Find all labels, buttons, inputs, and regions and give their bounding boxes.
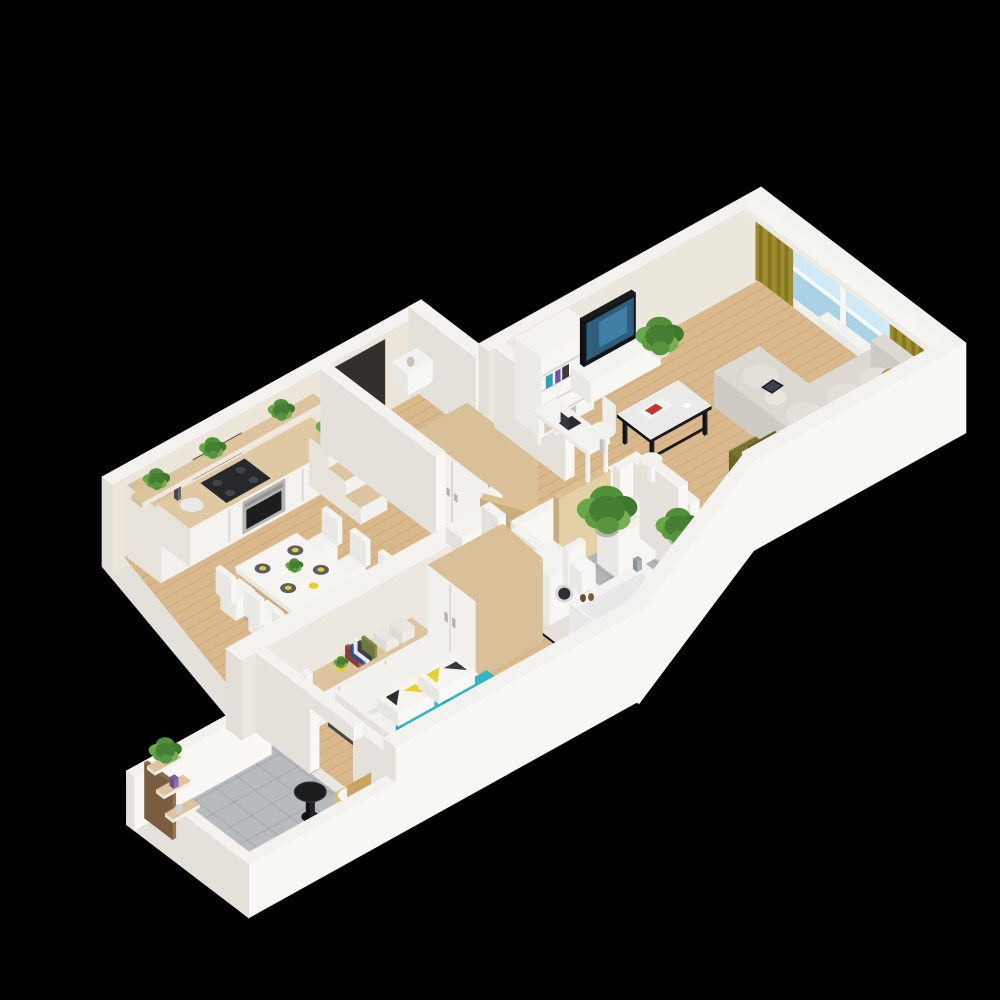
burner [212, 480, 222, 486]
wardrobe-seam [452, 461, 453, 533]
books-purple [556, 369, 561, 383]
table-bowl [309, 583, 319, 589]
desk-leg-side [586, 453, 588, 483]
dining-chair-back-side [259, 598, 264, 626]
napkin [292, 548, 299, 552]
desk-leg-side [606, 443, 608, 473]
wardrobe-handle [447, 488, 450, 497]
wall-north-kitchen-side [102, 477, 112, 575]
wardrobe-handle [445, 612, 448, 622]
desk-leg-side [536, 415, 538, 445]
burner [249, 477, 259, 483]
tv-side [580, 318, 584, 366]
pillow [764, 389, 786, 405]
counter-seam [229, 509, 230, 542]
wardrobe-seam [450, 585, 451, 658]
side-table [640, 452, 662, 466]
burner [236, 467, 246, 473]
kitchen-sink [180, 498, 204, 512]
dining-chair-back-side [337, 518, 342, 546]
jar [175, 804, 183, 814]
cup [683, 403, 691, 408]
balcony-railing-north-side [126, 771, 134, 831]
napkin [285, 586, 292, 590]
desk-leg-side [538, 415, 540, 445]
bottle [588, 593, 594, 601]
dresser-book-side [375, 645, 377, 658]
wall-kitchen-east-a-side [436, 452, 445, 537]
toilet-tank-side [563, 547, 568, 586]
counter-seam [302, 469, 303, 502]
wardrobe-handle [453, 618, 456, 628]
napkin [317, 567, 324, 571]
floorplan-3d-render [0, 0, 1000, 1000]
wall-bedroom-north-side [226, 648, 242, 740]
napkin [259, 566, 266, 570]
desk-leg-side [588, 453, 590, 483]
floorplan-stage [0, 0, 1000, 1000]
dining-chair-back-side [231, 577, 236, 605]
vase [407, 357, 415, 367]
burner [225, 490, 235, 496]
washer-door [558, 588, 570, 600]
toilet-seat [575, 559, 592, 570]
kitchen-faucet-side [178, 487, 181, 501]
balcony-railing-south-side [240, 857, 249, 918]
bottle [580, 594, 586, 602]
dining-chair-back-side [366, 540, 371, 568]
balcony-table [294, 782, 326, 802]
